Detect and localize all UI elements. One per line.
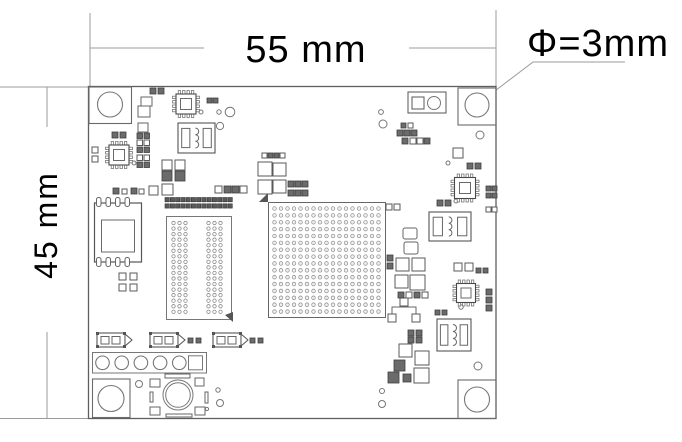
bga-ball (292, 214, 296, 218)
smd-pad (137, 162, 143, 168)
bga-ball (344, 289, 348, 293)
bga-ball (357, 227, 361, 231)
bga-ball (279, 262, 283, 266)
smd-pad (465, 263, 473, 271)
smd-pad (92, 147, 98, 153)
via (172, 288, 175, 291)
bga-ball (325, 207, 329, 211)
via (207, 249, 210, 252)
via (178, 244, 181, 247)
bga-ball (370, 248, 374, 252)
soic-pin (97, 198, 102, 207)
smd-pad (144, 133, 150, 139)
smd-pad (258, 338, 263, 343)
bga-ball (292, 255, 296, 259)
via (178, 221, 181, 224)
smd-pad (149, 186, 158, 195)
bga-ball (292, 248, 296, 252)
smd-pad (162, 160, 172, 170)
smd-pad (162, 171, 172, 181)
bga-ball (325, 310, 329, 314)
bga-ball (318, 227, 322, 231)
bga-ball (286, 220, 290, 224)
bga-ball (312, 255, 316, 259)
header-pin (223, 198, 227, 202)
bga-ball (305, 269, 309, 273)
bga-ball (357, 234, 361, 238)
bga-ball (286, 296, 290, 300)
via (172, 305, 175, 308)
bga-ball (318, 214, 322, 218)
bga-ball (312, 220, 316, 224)
hole-leader-line (487, 62, 625, 97)
bga-ball (364, 234, 368, 238)
via (207, 282, 210, 285)
inductor-outline (429, 212, 471, 241)
bga-ball (325, 275, 329, 279)
smd-pad (302, 190, 308, 196)
connector-hole (115, 356, 129, 370)
bga-ball (292, 275, 296, 279)
via (184, 260, 187, 263)
bga-ball (273, 275, 277, 279)
soic-pin (116, 258, 121, 267)
via (213, 227, 216, 230)
smd-pad (274, 153, 279, 158)
bga-ball (357, 296, 361, 300)
bga-ball (305, 303, 309, 307)
via (213, 232, 216, 235)
connector-hole (96, 356, 110, 370)
inductor-outline (178, 123, 215, 153)
smd-pad (139, 189, 144, 194)
bga-ball (299, 296, 303, 300)
bga-ball (370, 214, 374, 218)
smd-pad (262, 153, 267, 158)
bga-ball (351, 248, 355, 252)
bga-ball (338, 227, 342, 231)
via (219, 260, 222, 263)
via (219, 310, 222, 313)
bga-ball (351, 227, 355, 231)
via (178, 266, 181, 269)
qfn-ic (106, 142, 133, 169)
smd-pad (213, 98, 218, 103)
bga-ball (325, 241, 329, 245)
bga-ball (357, 289, 361, 293)
via (178, 282, 181, 285)
via (184, 221, 187, 224)
bga-ball (364, 248, 368, 252)
passive-part (150, 379, 160, 387)
bga-ball (312, 282, 316, 286)
smd-pad (232, 186, 239, 193)
corner-mark (239, 345, 242, 348)
bga-ball (331, 269, 335, 273)
bga-ball (357, 269, 361, 273)
bga-ball (331, 289, 335, 293)
smd-pad (130, 273, 137, 280)
bga-ball (286, 207, 290, 211)
smd-pad (408, 337, 414, 343)
smd-pad (224, 186, 231, 193)
bga-ball (357, 241, 361, 245)
bga-ball (286, 248, 290, 252)
bga-ball (325, 282, 329, 286)
smd-pad (144, 155, 150, 161)
bga-ball (377, 275, 381, 279)
bga-ball (305, 241, 309, 245)
bga-ball (279, 241, 283, 245)
smd-pad (137, 147, 143, 153)
smd-pad (250, 338, 255, 343)
passive-part (150, 407, 160, 415)
header-pin (191, 198, 195, 202)
via (184, 299, 187, 302)
bga-ball (292, 282, 296, 286)
via (213, 221, 216, 224)
bga-ball (318, 241, 322, 245)
bga-ball (370, 207, 374, 211)
via (213, 266, 216, 269)
bga-ball (344, 310, 348, 314)
bga-ball (351, 214, 355, 218)
smd-pad (492, 186, 497, 191)
soic-pin (116, 198, 121, 207)
bga-ball (364, 207, 368, 211)
bga-ball (305, 234, 309, 238)
smd-pad (408, 123, 413, 128)
smd-pad (137, 140, 143, 146)
bga-ball (338, 214, 342, 218)
smd-pad (273, 180, 286, 193)
bga-ball (279, 275, 283, 279)
bga-ball (299, 207, 303, 211)
bga-ball (299, 220, 303, 224)
smd-pad (486, 305, 492, 311)
smd-pad (475, 163, 481, 169)
smd-pad (414, 292, 420, 298)
smd-pad (410, 275, 425, 290)
via (219, 249, 222, 252)
smd-pad (415, 351, 429, 365)
via (207, 299, 210, 302)
bga-ball (370, 289, 374, 293)
bga-ball (377, 296, 381, 300)
via (219, 227, 222, 230)
connector-hole (134, 356, 148, 370)
bga-ball (377, 303, 381, 307)
bga-ball (279, 303, 283, 307)
passive-part (195, 378, 204, 386)
bga-ball (312, 296, 316, 300)
bga-ball (370, 220, 374, 224)
passive-part (141, 97, 152, 106)
header-pin (202, 198, 206, 202)
bga-ball (344, 227, 348, 231)
bga-ball (344, 262, 348, 266)
header-pin (197, 198, 201, 202)
via (178, 310, 181, 313)
via (178, 271, 181, 274)
smd-pad (158, 88, 164, 94)
via (207, 288, 210, 291)
soic-pin (106, 198, 111, 207)
smd-pad (295, 190, 301, 196)
via (207, 255, 210, 258)
header-pin (186, 204, 190, 208)
smd-pad (486, 193, 491, 198)
corner-mark (239, 332, 242, 335)
via (172, 221, 175, 224)
via (172, 255, 175, 258)
bga-ball (357, 282, 361, 286)
bga-ball (370, 241, 374, 245)
via (207, 277, 210, 280)
via (178, 293, 181, 296)
bga-ball (273, 282, 277, 286)
bga-ball (338, 241, 342, 245)
via (219, 221, 222, 224)
via (207, 266, 210, 269)
bga-ball (351, 269, 355, 273)
bga-ball (351, 255, 355, 259)
via (184, 249, 187, 252)
corner-mark (123, 345, 126, 348)
bga-ball (377, 241, 381, 245)
smd-pad (268, 153, 273, 158)
connector-hole (173, 356, 187, 370)
bga-ball (299, 234, 303, 238)
bga-ball (344, 234, 348, 238)
soic-pin (106, 258, 111, 267)
bga-ball (344, 255, 348, 259)
bga-ball (370, 303, 374, 307)
bga-ball (377, 207, 381, 211)
bga-ball (299, 282, 303, 286)
header-pin (165, 204, 169, 208)
smd-pad (240, 186, 247, 193)
via (178, 288, 181, 291)
bga-ball (273, 234, 277, 238)
smd-pad (207, 98, 212, 103)
smd-pad (411, 130, 417, 136)
bga-ball (292, 269, 296, 273)
smd-pad (258, 180, 272, 194)
bga-ball (364, 255, 368, 259)
qfn-body (109, 145, 129, 165)
header-pin (228, 204, 232, 208)
bga-ball (364, 282, 368, 286)
bga-ball (351, 282, 355, 286)
polarized-caps (96, 332, 248, 348)
via (172, 293, 175, 296)
bga-ball (338, 255, 342, 259)
header-pin (181, 198, 185, 202)
bga-ball (299, 241, 303, 245)
via (207, 244, 210, 247)
smd-pad (215, 186, 222, 193)
via (207, 232, 210, 235)
corner-mark (96, 332, 99, 335)
smd-pad (486, 297, 492, 303)
bga-ball (377, 234, 381, 238)
corner-mark (96, 345, 99, 348)
bga-ball (357, 248, 361, 252)
via (184, 227, 187, 230)
passive-part (404, 242, 418, 254)
via (207, 227, 210, 230)
bga-ball (377, 269, 381, 273)
bga-ball (331, 262, 335, 266)
bga-ball (299, 275, 303, 279)
bga-ball (299, 227, 303, 231)
bga-ball (318, 289, 322, 293)
via (178, 232, 181, 235)
bga-ball (305, 289, 309, 293)
header-pin (191, 204, 195, 208)
header-pin (218, 204, 222, 208)
via (184, 282, 187, 285)
bga-ball (273, 269, 277, 273)
qfn-ic (453, 280, 479, 306)
bga-ball (344, 207, 348, 211)
bga-ball (312, 234, 316, 238)
bga-ball (318, 248, 322, 252)
bga-ball (279, 234, 283, 238)
bga-ball (344, 275, 348, 279)
bga-ball (338, 234, 342, 238)
bga-ball (364, 303, 368, 307)
smd-pad (288, 181, 294, 187)
bga-ball (286, 269, 290, 273)
bga-ball (325, 214, 329, 218)
smd-pad (398, 292, 404, 298)
via (213, 249, 216, 252)
bga-ball (357, 262, 361, 266)
bga-ball (279, 296, 283, 300)
via (213, 238, 216, 241)
bga-ball (286, 282, 290, 286)
bga-ball (377, 282, 381, 286)
smd-pad (302, 181, 308, 187)
bga-ball (331, 303, 335, 307)
bga-ball (338, 275, 342, 279)
bga-ball (351, 207, 355, 211)
connector-hole (153, 356, 167, 370)
via (219, 244, 222, 247)
bga-ball (279, 255, 283, 259)
smd-pad (119, 284, 126, 291)
bga-ball (351, 296, 355, 300)
via (172, 299, 175, 302)
bga-ball (305, 255, 309, 259)
smd-pad (131, 188, 137, 194)
via (207, 271, 210, 274)
bga-ball (305, 207, 309, 211)
corner-mark (176, 345, 179, 348)
bga-ball (338, 303, 342, 307)
smd-pad (175, 160, 185, 170)
bga-ball (312, 207, 316, 211)
bga-ball (292, 303, 296, 307)
bga-ball (312, 227, 316, 231)
smd-pad (394, 204, 400, 210)
smd-pad (175, 171, 185, 181)
passive-part (166, 414, 192, 417)
via (219, 266, 222, 269)
bga-ball (305, 282, 309, 286)
via (207, 238, 210, 241)
inductor (437, 319, 471, 351)
bga-ball (273, 214, 277, 218)
smd-pad (408, 330, 414, 336)
bga-ball (370, 269, 374, 273)
bga-ball (299, 214, 303, 218)
bga-ball (286, 275, 290, 279)
bga-ball (377, 227, 381, 231)
via (172, 232, 175, 235)
smd-pad (422, 292, 428, 298)
pcb-dimension-drawing: 55 mm Φ=3mm 45 mm (0, 0, 682, 442)
bga-ball (325, 248, 329, 252)
header-pin (186, 198, 190, 202)
bga-ball (305, 214, 309, 218)
bga-ball (331, 282, 335, 286)
passive-part (138, 106, 150, 117)
bga-ball (292, 220, 296, 224)
bga-ball (357, 220, 361, 224)
smd-pad (396, 258, 409, 271)
bga-ball (273, 289, 277, 293)
bga-ball (357, 214, 361, 218)
header-pin (197, 204, 201, 208)
bga-ball (338, 296, 342, 300)
bga-ball (331, 255, 335, 259)
bga-ball (305, 248, 309, 252)
smd-pad (162, 184, 173, 195)
bga-ball (299, 269, 303, 273)
inductor (178, 123, 215, 153)
via (184, 293, 187, 296)
passive-part (138, 123, 148, 132)
bga-ball (273, 241, 277, 245)
bga-ball (312, 303, 316, 307)
bga-ball (377, 248, 381, 252)
via (213, 277, 216, 280)
bga-ball (299, 310, 303, 314)
bga-ball (344, 296, 348, 300)
corner-mark (149, 345, 152, 348)
smd-pad (394, 360, 405, 371)
bga-ball (286, 234, 290, 238)
inductor-outline (437, 319, 471, 351)
header-pin (228, 198, 232, 202)
via (207, 310, 210, 313)
smd-pad (412, 258, 425, 271)
header-pin (170, 198, 174, 202)
bga-ball (273, 262, 277, 266)
smd-pad (402, 138, 408, 144)
header-pin (176, 204, 180, 208)
header-pin (223, 204, 227, 208)
bga-ball (351, 275, 355, 279)
soic-pin (97, 258, 102, 267)
bga-ball (377, 220, 381, 224)
bga-ball (377, 310, 381, 314)
smd-pad (445, 200, 451, 206)
via (172, 271, 175, 274)
